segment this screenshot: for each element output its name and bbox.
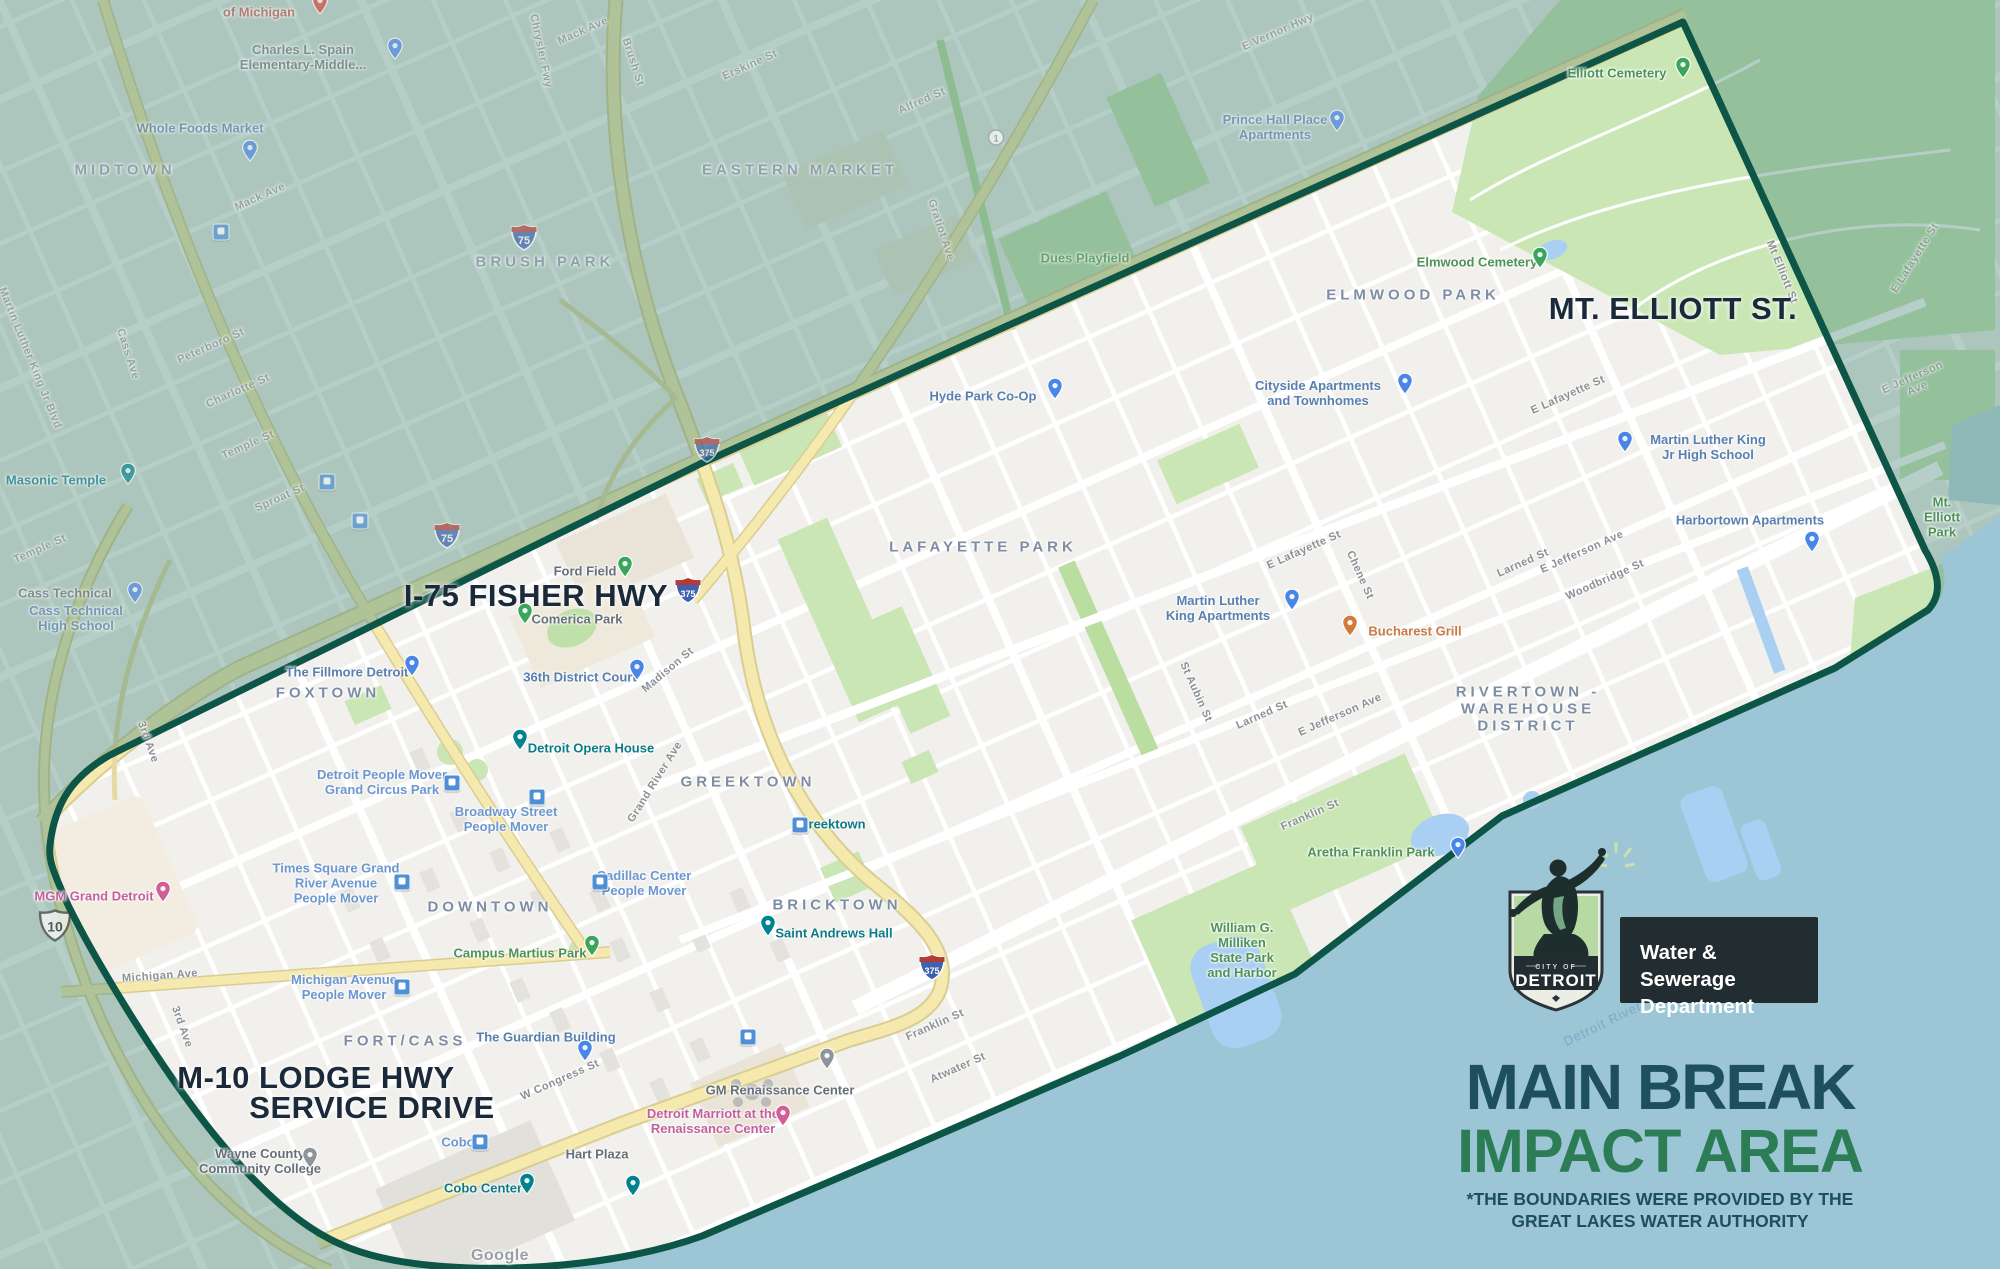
people-mover-station-icon xyxy=(792,817,809,834)
street-label: 3rd Ave xyxy=(169,1005,195,1050)
poi-label: Comerica Park xyxy=(531,612,622,627)
impact-road-label: I-75 FISHER HWY xyxy=(404,578,668,614)
poi-label: Harbortown Apartments xyxy=(1676,513,1824,528)
blue-map-pin-icon xyxy=(1804,530,1821,559)
street-label: Alfred St xyxy=(897,85,948,116)
street-label: E Lafayette St xyxy=(1529,373,1607,416)
people-mover-station-icon xyxy=(472,1134,489,1151)
street-label: Sproat St xyxy=(253,482,307,515)
blue-map-pin-icon xyxy=(577,1039,594,1068)
neighborhood-label: DOWNTOWN xyxy=(427,899,552,916)
neighborhood-label: GREEKTOWN xyxy=(681,774,816,791)
blue-map-pin-icon xyxy=(1450,836,1467,865)
neighborhood-label: FORT/CASS xyxy=(344,1033,467,1050)
blue-map-pin-icon xyxy=(1329,109,1346,138)
poi-label: Cobo Center xyxy=(444,1181,522,1196)
poi-label: Mt. Elliott Park xyxy=(1913,495,1971,540)
poi-label: Detroit Marriott at the Renaissance Cent… xyxy=(647,1106,779,1136)
boundaries-disclaimer: *THE BOUNDARIES WERE PROVIDED BY THE GRE… xyxy=(1430,1188,1890,1232)
poi-label: Cityside Apartments and Townhomes xyxy=(1255,378,1381,408)
poi-label: Wayne County Community College xyxy=(199,1146,321,1176)
poi-label: Cadillac Center People Mover xyxy=(597,868,692,898)
people-mover-station-icon xyxy=(592,874,609,891)
title-main-break: MAIN BREAK xyxy=(1440,1050,1880,1124)
street-label: W Congress St xyxy=(519,1057,601,1102)
poi-label: Dues Playfield xyxy=(1041,251,1130,266)
neighborhood-label: RIVERTOWN - WAREHOUSE DISTRICT xyxy=(1456,684,1601,735)
orange-map-pin-icon xyxy=(1342,614,1359,643)
people-mover-station-icon xyxy=(213,224,230,241)
poi-label: The Fillmore Detroit xyxy=(286,665,409,680)
impact-road-label: SERVICE DRIVE xyxy=(249,1090,494,1126)
poi-label: of Michigan xyxy=(223,5,295,20)
blue-map-pin-icon xyxy=(242,139,259,168)
svg-text:75: 75 xyxy=(441,533,453,545)
people-mover-station-icon xyxy=(319,474,336,491)
teal-map-pin-icon xyxy=(519,1172,536,1201)
street-label: St Aubin St xyxy=(1177,660,1214,724)
poi-label: Prince Hall Place Apartments xyxy=(1223,112,1328,142)
street-label: Michigan Ave xyxy=(122,967,199,984)
street-label: Larned St xyxy=(1234,698,1289,731)
svg-text:1: 1 xyxy=(993,134,998,144)
poi-label: Broadway Street People Mover xyxy=(455,804,558,834)
interstate-shield-icon: 75 xyxy=(511,224,538,256)
neighborhood-label: ELMWOOD PARK xyxy=(1326,287,1500,304)
disclaimer-line1: *THE BOUNDARIES WERE PROVIDED BY THE xyxy=(1467,1189,1854,1209)
neighborhood-label: BRICKTOWN xyxy=(772,897,901,914)
green-map-pin-icon xyxy=(584,934,601,963)
poi-label: Cass Technical xyxy=(18,586,112,601)
interstate-shield-icon: 75 xyxy=(434,522,461,554)
neighborhood-label: EASTERN MARKET xyxy=(702,162,898,179)
green-map-pin-icon xyxy=(1532,246,1549,275)
street-label: E Jefferson Ave xyxy=(1297,691,1384,738)
street-label: Franklin St xyxy=(1279,797,1341,833)
teal-map-pin-icon xyxy=(120,462,137,491)
interstate-shield-icon: 375 xyxy=(915,954,949,986)
poi-label: The Guardian Building xyxy=(476,1030,615,1045)
department-box: Water & Sewerage Department xyxy=(1620,917,1818,1003)
poi-label: Elliott Cemetery xyxy=(1568,66,1667,81)
street-label: Temple St xyxy=(220,428,276,462)
department-line2: Department xyxy=(1640,993,1818,1020)
teal-map-pin-icon xyxy=(625,1174,642,1203)
street-label: Chrysler Fwy xyxy=(527,13,554,89)
poi-label: Cass Technical High School xyxy=(29,603,123,633)
interstate-shield-icon: 375 xyxy=(671,577,705,609)
poi-label: Detroit People Mover Grand Circus Park xyxy=(317,767,447,797)
people-mover-station-icon xyxy=(444,775,461,792)
poi-label: Whole Foods Market xyxy=(136,121,263,136)
neighborhood-label: FOXTOWN xyxy=(276,685,380,702)
svg-text:75: 75 xyxy=(518,235,530,247)
poi-label: Ford Field xyxy=(554,564,617,579)
map-canvas: MIDTOWNBRUSH PARKEASTERN MARKETELMWOOD P… xyxy=(0,0,2000,1269)
street-label: E Vernor Hwy xyxy=(1240,11,1315,53)
poi-label: MGM Grand Detroit xyxy=(34,889,153,904)
google-watermark: Google xyxy=(471,1247,529,1265)
people-mover-station-icon xyxy=(352,513,369,530)
poi-label: Campus Martius Park xyxy=(454,946,587,961)
pink-map-pin-icon xyxy=(155,880,172,909)
poi-label: Aretha Franklin Park xyxy=(1307,845,1434,860)
poi-label: Masonic Temple xyxy=(6,473,106,488)
blue-map-pin-icon xyxy=(404,654,421,683)
department-line1: Water & Sewerage xyxy=(1640,939,1818,993)
poi-label: Martin Luther King Apartments xyxy=(1166,593,1270,623)
street-label: Grand River Ave xyxy=(625,739,684,824)
m-route-shield-icon: 10 xyxy=(38,909,72,948)
blue-map-pin-icon xyxy=(1047,377,1064,406)
neighborhood-label: MIDTOWN xyxy=(74,162,175,179)
blue-map-pin-icon xyxy=(127,581,144,610)
impact-road-label: M-10 LODGE HWY xyxy=(177,1060,454,1096)
street-label: Atwater St xyxy=(928,1050,987,1085)
interstate-shield-icon: 375 xyxy=(690,436,724,468)
people-mover-station-icon xyxy=(529,789,546,806)
svg-text:375: 375 xyxy=(699,448,714,458)
people-mover-station-icon xyxy=(394,874,411,891)
street-label: E Jefferson Ave xyxy=(1871,355,1958,411)
poi-label: Saint Andrews Hall xyxy=(775,926,892,941)
teal-map-pin-icon xyxy=(512,728,529,757)
poi-label: Charles L. Spain Elementary-Middle... xyxy=(240,42,366,72)
poi-label: Michigan Avenue People Mover xyxy=(291,972,397,1002)
street-label: Erskine St xyxy=(721,48,780,83)
green-map-pin-icon xyxy=(1675,56,1692,85)
street-label: E Lafayette St xyxy=(1265,528,1343,571)
svg-text:10: 10 xyxy=(47,919,63,935)
poi-label: Times Square Grand River Avenue People M… xyxy=(273,861,400,906)
people-mover-station-icon xyxy=(740,1029,757,1046)
street-label: Brush St xyxy=(620,36,647,87)
neighborhood-label: LAFAYETTE PARK xyxy=(889,539,1077,556)
street-label: Mt Elliott St xyxy=(1764,239,1800,306)
blue-map-pin-icon xyxy=(1397,372,1414,401)
poi-label: Elmwood Cemetery xyxy=(1417,255,1538,270)
badge-city-of: CITY OF xyxy=(1535,964,1576,971)
street-label: Larned St xyxy=(1495,546,1550,579)
street-label: Peterboro St xyxy=(176,326,247,366)
badge-detroit: DETROIT xyxy=(1515,971,1597,990)
street-label: Mack Ave xyxy=(233,181,287,214)
grey-map-pin-icon xyxy=(819,1047,836,1076)
poi-label: Detroit Opera House xyxy=(528,741,654,756)
people-mover-station-icon xyxy=(394,979,411,996)
street-label: Chene St xyxy=(1344,549,1376,601)
teal-map-pin-icon xyxy=(760,914,777,943)
street-label: Madison St xyxy=(640,645,696,695)
street-label: 3rd Ave xyxy=(135,720,161,765)
pink-map-pin-icon xyxy=(775,1104,792,1133)
street-label: E Lafayette St xyxy=(1889,221,1941,295)
red-map-pin-icon xyxy=(312,0,329,21)
poi-label: Martin Luther King Jr High School xyxy=(1650,432,1766,462)
street-label: Temple St xyxy=(12,532,68,566)
blue-map-pin-icon xyxy=(629,658,646,687)
street-label: Mack Ave xyxy=(556,15,610,48)
disclaimer-line2: GREAT LAKES WATER AUTHORITY xyxy=(1511,1211,1808,1231)
poi-label: William G. Milliken State Park and Harbo… xyxy=(1207,920,1276,980)
blue-map-pin-icon xyxy=(1284,588,1301,617)
street-label: Gratiot Ave xyxy=(925,198,956,263)
neighborhood-label: BRUSH PARK xyxy=(476,254,615,271)
poi-label: Cobo xyxy=(441,1135,474,1150)
svg-text:375: 375 xyxy=(924,966,939,976)
street-label: E Jefferson Ave xyxy=(1539,528,1626,575)
poi-label: 36th District Court xyxy=(523,670,636,685)
route-shield-icon: 1 xyxy=(987,129,1005,152)
poi-label: Hyde Park Co-Op xyxy=(930,389,1037,404)
green-map-pin-icon xyxy=(617,555,634,584)
poi-label: Bucharest Grill xyxy=(1368,624,1461,639)
title-impact-area: IMPACT AREA xyxy=(1440,1116,1880,1186)
street-label: Franklin St xyxy=(904,1007,966,1043)
street-label: Charlotte St xyxy=(204,372,271,411)
street-label: Cass Ave xyxy=(114,327,142,381)
impact-road-label: MT. ELLIOTT ST. xyxy=(1549,291,1798,327)
blue-map-pin-icon xyxy=(1617,430,1634,459)
street-label: Martin Luther King Jr Blvd xyxy=(0,286,64,431)
poi-label: Hart Plaza xyxy=(566,1147,629,1162)
poi-label: GM Renaissance Center xyxy=(706,1083,855,1098)
blue-map-pin-icon xyxy=(387,37,404,66)
grey-map-pin-icon xyxy=(302,1146,319,1175)
green-map-pin-icon xyxy=(517,602,534,631)
street-label: Woodbridge St xyxy=(1564,557,1646,602)
svg-text:375: 375 xyxy=(680,589,695,599)
